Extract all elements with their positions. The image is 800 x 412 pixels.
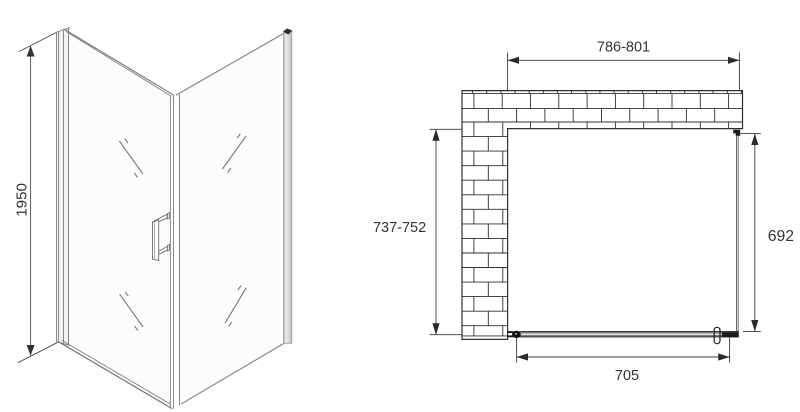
svg-text:737-752: 737-752 bbox=[373, 220, 426, 236]
svg-text:1950: 1950 bbox=[14, 183, 31, 217]
svg-text:692: 692 bbox=[768, 228, 794, 245]
svg-text:786-801: 786-801 bbox=[597, 40, 650, 56]
svg-text:705: 705 bbox=[615, 368, 639, 384]
